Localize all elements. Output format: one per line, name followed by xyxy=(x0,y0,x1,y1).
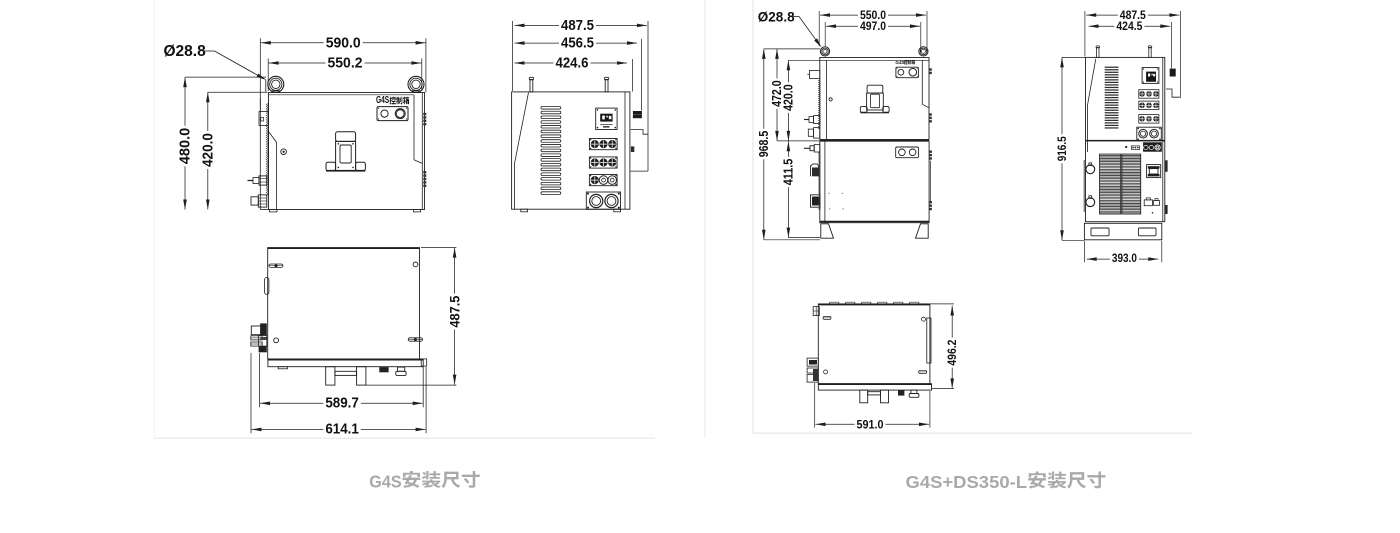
svg-text:411.5: 411.5 xyxy=(781,159,795,186)
svg-text:Ø28.8: Ø28.8 xyxy=(164,43,207,60)
svg-text:G4S: G4S xyxy=(895,60,904,65)
svg-text:G4S+DS350-L: G4S+DS350-L xyxy=(906,472,1028,492)
svg-text:550.2: 550.2 xyxy=(328,55,363,72)
svg-text:420.0: 420.0 xyxy=(781,84,795,111)
svg-text:591.0: 591.0 xyxy=(857,417,884,431)
svg-text:614.1: 614.1 xyxy=(325,421,359,437)
svg-text:424.6: 424.6 xyxy=(556,55,589,72)
svg-text:590.0: 590.0 xyxy=(326,34,361,51)
svg-text:Ø28.8: Ø28.8 xyxy=(758,9,795,24)
svg-text:393.0: 393.0 xyxy=(1112,253,1137,265)
svg-text:589.7: 589.7 xyxy=(325,395,359,411)
svg-text:916.5: 916.5 xyxy=(1055,136,1069,161)
svg-text:968.5: 968.5 xyxy=(757,131,771,158)
svg-text:G4S: G4S xyxy=(376,95,390,106)
svg-text:G4S: G4S xyxy=(369,471,401,491)
svg-text:420.0: 420.0 xyxy=(199,133,216,167)
svg-text:497.0: 497.0 xyxy=(860,19,886,33)
svg-text:456.5: 456.5 xyxy=(561,35,594,52)
svg-text:480.0: 480.0 xyxy=(177,128,194,165)
svg-text:487.5: 487.5 xyxy=(561,17,594,34)
svg-text:496.2: 496.2 xyxy=(945,339,959,365)
svg-text:424.5: 424.5 xyxy=(1116,19,1142,33)
svg-text:487.5: 487.5 xyxy=(447,295,463,327)
